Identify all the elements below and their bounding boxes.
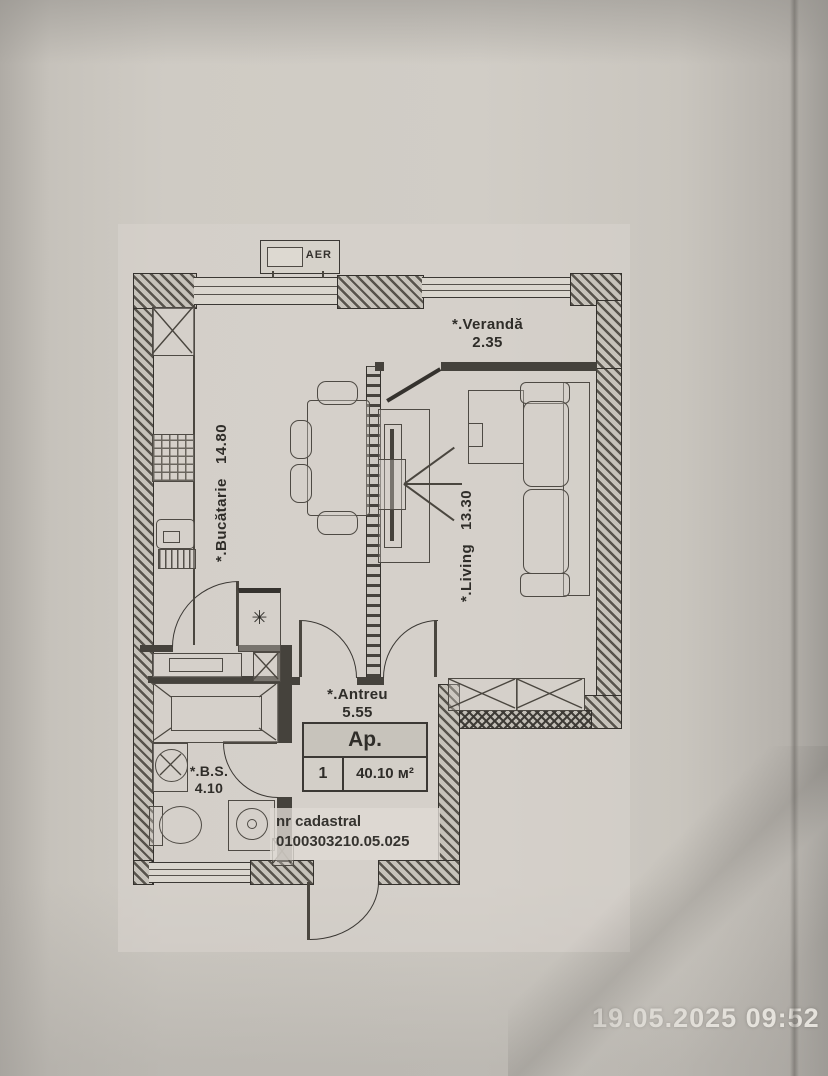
paper-fold-corner — [508, 746, 828, 1076]
kitchen-window — [194, 277, 337, 305]
cadastral-block: nr cadastral 0100303210.05.025 — [270, 808, 440, 860]
sofa-armrest — [520, 573, 570, 597]
ac-bracket — [272, 271, 274, 278]
tv-stand — [378, 459, 406, 510]
bathroom-name: *.B.S. — [168, 763, 250, 780]
cadastral-label: nr cadastral — [276, 812, 440, 832]
wall-hall-right — [438, 684, 460, 876]
veranda-window — [422, 277, 572, 298]
wall-bottom-2 — [378, 860, 460, 885]
wall-hall-top-stub — [357, 677, 384, 685]
bathroom-window — [149, 862, 250, 883]
kitchen-name: *.Bucătarie — [213, 478, 230, 562]
chair — [317, 511, 358, 535]
dining-table — [307, 400, 370, 516]
chair — [290, 464, 312, 503]
wall-veranda-bottom-right — [441, 362, 597, 371]
living-name: *.Living — [458, 544, 475, 602]
bathtub-inner — [171, 696, 262, 731]
wall-left — [133, 273, 154, 885]
ac-unit: AER — [260, 240, 340, 274]
ac-bracket — [322, 271, 324, 278]
toilet-bowl — [159, 806, 202, 844]
wardrobe-cell — [516, 678, 585, 711]
hall-name: *.Antreu — [295, 686, 420, 704]
wall-right-living — [596, 368, 622, 700]
hall-living-door-leaf — [434, 620, 437, 677]
washing-machine-hub — [247, 819, 257, 829]
vent-closet: ✳ — [238, 588, 281, 652]
ac-unit-label: AER — [306, 249, 332, 261]
kitchen-faucet — [163, 531, 180, 543]
wall-right-veranda — [596, 300, 622, 374]
apartment-total-area: 40.10 м² — [344, 758, 426, 790]
kitchen-cabinet — [152, 307, 195, 356]
floor-plan-photo: AER ✳ — [0, 0, 828, 1076]
wall-top-corner-left — [133, 273, 197, 309]
chair — [290, 420, 312, 459]
apartment-number: 1 — [304, 758, 344, 790]
room-label-veranda: *.Verandă 2.35 — [380, 316, 595, 352]
apartment-title: Ap. — [304, 724, 426, 758]
ac-fan-icon — [267, 247, 303, 267]
living-area: 13.30 — [458, 490, 475, 544]
bathroom-area: 4.10 — [168, 780, 250, 797]
chair — [317, 381, 358, 405]
tv-view-line — [404, 483, 462, 485]
sofa-seat — [523, 489, 569, 574]
vent-shaft-box — [253, 652, 281, 682]
room-label-hall: *.Antreu 5.55 — [295, 686, 420, 722]
sofa-seat — [523, 401, 569, 487]
veranda-name: *.Verandă — [380, 316, 595, 334]
apartment-info-box: Ap. 1 40.10 м² — [302, 722, 428, 792]
hall-area: 5.55 — [295, 704, 420, 722]
wardrobe-cell — [448, 678, 518, 711]
hall-radiator — [152, 653, 242, 678]
hall-kitchen-door-leaf — [299, 620, 302, 677]
wall-top-mid — [337, 275, 424, 309]
wall-veranda-bottom-left — [375, 362, 384, 371]
wall-kitchen-bottom-1 — [140, 645, 173, 652]
desk-chair — [468, 423, 483, 447]
stove — [152, 434, 195, 482]
veranda-area: 2.35 — [380, 334, 595, 352]
room-label-living: *.Living 13.30 — [457, 452, 476, 602]
wall-hall-top-left — [285, 677, 300, 685]
room-label-kitchen: *.Bucătarie 14.80 — [212, 402, 231, 562]
kitchen-radiator — [158, 549, 196, 569]
kitchen-area: 14.80 — [213, 424, 230, 478]
room-label-bathroom: *.B.S. 4.10 — [168, 763, 250, 797]
hall-radiator-core — [169, 658, 223, 672]
cadastral-number: 0100303210.05.025 — [276, 832, 440, 852]
wall-living-bottom — [440, 710, 592, 729]
